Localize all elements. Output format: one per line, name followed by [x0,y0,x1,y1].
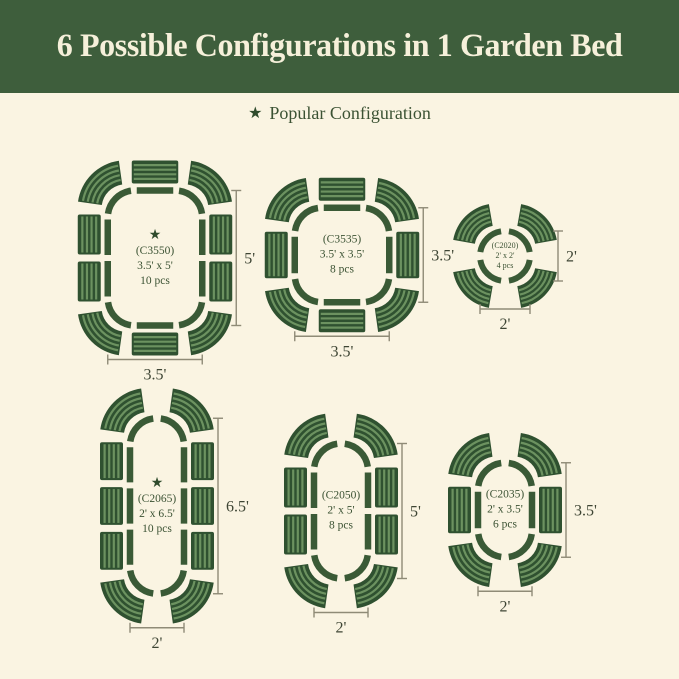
config-code: (C3535) [320,233,364,248]
config-size: 3.5' x 5' [136,259,174,274]
garden-bed-diagram-c2050: 5'2' [270,400,470,670]
config-label: ★ (C2050) 2' x 5' 8 pcs [322,489,360,534]
config-code: (C3550) [136,244,174,259]
height-dimension-label: 3.5' [574,503,597,520]
height-dimension-label: 5' [410,504,421,521]
config-size: 2' x 5' [322,504,360,519]
config-code: (C2050) [322,489,360,504]
config-pieces: 10 pcs [138,522,176,537]
config-pieces: 10 pcs [136,274,174,289]
config-pieces: 4 pcs [492,261,519,271]
width-dimension-label: 2' [500,316,511,333]
config-label: ★ (C3550) 3.5' x 5' 10 pcs [136,227,174,289]
config-size: 2' x 6.5' [138,507,176,522]
popular-star-icon: ★ [136,227,174,244]
star-icon: ★ [248,105,262,122]
page-title: 6 Possible Configurations in 1 Garden Be… [57,28,623,65]
popular-star-icon: ★ [138,475,176,492]
width-dimension-label: 3.5' [144,367,167,384]
height-dimension-label: 6.5' [226,499,249,516]
width-dimension-label: 2' [500,598,511,615]
legend-label: Popular Configuration [269,103,430,123]
header-banner: 6 Possible Configurations in 1 Garden Be… [0,0,679,93]
config-label: ★ (C3535) 3.5' x 3.5' 8 pcs [320,233,364,278]
dimension-lines: 3.5'2' [478,463,597,616]
garden-bed-diagram-c3535: 3.5'3.5' [270,140,470,400]
config-size: 2' x 2' [492,251,519,261]
config-c2065: 6.5'2' ★ (C2065) 2' x 6.5' 10 pcs [20,400,270,670]
config-label: ★ (C2035) 2' x 3.5' 6 pcs [486,488,524,533]
dimension-lines: 5'3.5' [108,191,256,384]
dimension-lines: 3.5'3.5' [295,208,455,361]
config-pieces: 8 pcs [320,263,364,278]
config-pieces: 6 pcs [486,518,524,533]
popular-legend: ★Popular Configuration [0,99,679,127]
width-dimension-label: 2' [336,620,347,637]
config-label: ★ (C2020) 2' x 2' 4 pcs [492,241,519,271]
width-dimension-label: 3.5' [331,343,354,360]
garden-bed-diagram-c2020: 2'2' [450,140,650,400]
config-size: 3.5' x 3.5' [320,248,364,263]
config-code: (C2065) [138,492,176,507]
config-c3550: 5'3.5' ★ (C3550) 3.5' x 5' 10 pcs [20,140,270,400]
config-code: (C2035) [486,488,524,503]
config-pieces: 8 pcs [322,519,360,534]
height-dimension-label: 5' [244,251,255,268]
garden-bed-diagram-c2035: 3.5'2' [450,400,650,670]
config-c3535: 3.5'3.5' ★ (C3535) 3.5' x 3.5' 8 pcs [270,140,470,400]
config-c2035: 3.5'2' ★ (C2035) 2' x 3.5' 6 pcs [450,400,650,670]
config-code: (C2020) [492,241,519,251]
garden-bed-infographic: 6 Possible Configurations in 1 Garden Be… [0,0,679,679]
config-label: ★ (C2065) 2' x 6.5' 10 pcs [138,475,176,537]
config-c2050: 5'2' ★ (C2050) 2' x 5' 8 pcs [270,400,470,670]
height-dimension-label: 2' [566,249,577,266]
config-c2020: 2'2' ★ (C2020) 2' x 2' 4 pcs [450,140,650,400]
width-dimension-label: 2' [152,635,163,652]
config-size: 2' x 3.5' [486,503,524,518]
